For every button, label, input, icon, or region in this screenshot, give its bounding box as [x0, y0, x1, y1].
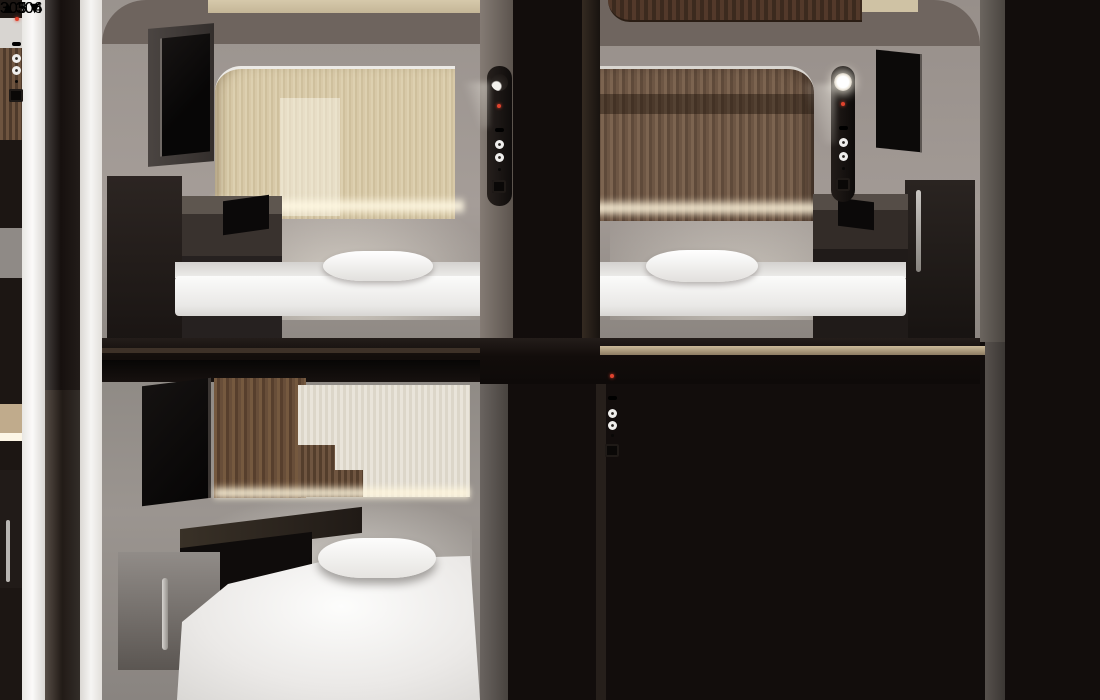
- control-button: [608, 421, 617, 430]
- side-cabinet: [107, 176, 182, 342]
- sliver-wood-glow: [0, 404, 22, 434]
- status-led: [610, 374, 614, 378]
- sliver-cabinet-handle: [6, 520, 10, 582]
- down-arrow-icon: ▼: [27, 0, 43, 17]
- light-beam: [459, 82, 489, 128]
- capsule-lower-right: [600, 360, 990, 700]
- capsule-hotel-scene: ▲306 305▼ ▲304: [0, 0, 1100, 700]
- power-outlet: [836, 178, 850, 191]
- capsule-ceiling-panel: [862, 0, 918, 12]
- control-button: [495, 153, 504, 162]
- frame-strip-left-inner: [80, 0, 102, 700]
- power-outlet: [492, 180, 506, 193]
- toggle-switch: [608, 396, 617, 400]
- tv-screen: [160, 33, 210, 156]
- counter-compartment: [838, 198, 874, 230]
- sliver-underlight: [0, 433, 22, 441]
- status-led: [497, 104, 501, 108]
- control-button: [495, 140, 504, 149]
- tv-screen: [876, 50, 922, 153]
- under-wall-light-strip: [600, 198, 827, 216]
- reading-light-knob-on: [834, 73, 852, 91]
- capsule-number-303: 303▼: [0, 0, 43, 18]
- pillow: [646, 250, 758, 282]
- sliver-cabinet: [0, 470, 22, 588]
- mattress: [175, 276, 480, 316]
- counter-compartment: [223, 195, 269, 235]
- frame-strip-left-outer: [22, 0, 45, 700]
- divider-wood-trim-right: [600, 346, 985, 355]
- capsule-control-panel: [487, 66, 512, 206]
- structural-column-left-lower: [45, 390, 80, 700]
- capsule-upper-right: [600, 0, 980, 342]
- headboard-shadow-band: [600, 94, 814, 114]
- under-wall-light-strip: [214, 484, 470, 500]
- capsule-ceiling-wood-panel: [608, 0, 862, 22]
- mic-hole: [498, 168, 501, 171]
- mic-hole: [842, 167, 845, 170]
- pod-number: 303: [0, 0, 27, 17]
- pillow: [318, 538, 436, 578]
- wood-back-wall: [214, 378, 306, 498]
- pillow: [323, 251, 433, 281]
- control-button: [12, 66, 21, 75]
- capsule-outer-shell-right: [980, 0, 1005, 342]
- mattress: [600, 276, 906, 316]
- aisle-wall-lower-left: [479, 342, 508, 700]
- capsule-upper-left: [102, 0, 480, 342]
- power-outlet: [9, 89, 23, 102]
- divider-wood-trim-left: [102, 348, 480, 353]
- mic-hole: [15, 80, 18, 83]
- mic-hole: [611, 434, 614, 437]
- control-button: [839, 152, 848, 161]
- control-button: [608, 409, 617, 418]
- toggle-switch: [12, 42, 21, 46]
- adjacent-pod-sliver-left: [0, 0, 22, 700]
- aisle-wall-upper-right: [582, 0, 600, 342]
- sliver-wall: [0, 228, 22, 278]
- toggle-switch: [495, 128, 504, 132]
- toggle-switch: [839, 126, 848, 130]
- status-led: [841, 102, 845, 106]
- light-beam: [799, 84, 835, 144]
- power-outlet: [605, 444, 619, 457]
- cabinet-handle: [916, 190, 921, 272]
- capsule-lower-left: [102, 360, 480, 700]
- capsule-control-panel: [831, 66, 855, 202]
- control-button: [839, 138, 848, 147]
- control-button: [12, 54, 21, 63]
- capsule-ceiling-panel: [208, 0, 480, 13]
- tv-screen: [142, 378, 211, 506]
- reading-light-knob: [491, 74, 508, 91]
- cabinet-handle: [162, 578, 168, 650]
